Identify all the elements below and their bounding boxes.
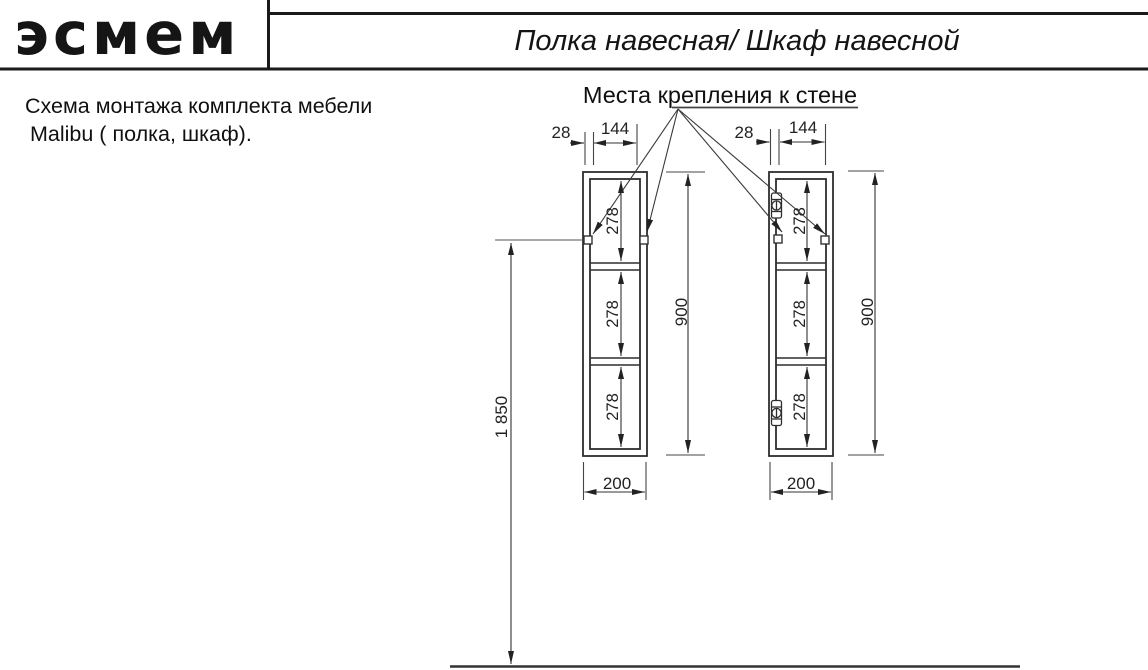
dim-label-278-right-3: 278 [791,393,809,421]
hinge-icon-bottom [772,401,782,426]
dim-label-1850: 1 850 [492,396,511,439]
wall-mount-callout-label: Места крепления к стене [545,82,895,109]
dim-label-28-left: 28 [552,123,571,142]
instruction-sheet-page: 28 144 28 144 278 278 278 278 278 278 [0,0,1148,670]
dim-label-278-left-1: 278 [604,207,622,235]
dim-label-278-right-2: 278 [791,300,809,328]
mounting-note: Схема монтажа комплекта мебели Malibu ( … [25,92,372,148]
dim-label-200-left: 200 [603,474,631,493]
mounting-note-line1: Схема монтажа комплекта мебели [25,92,372,120]
dim-label-28-right: 28 [735,123,754,142]
brand-logo: эсмем [14,0,264,66]
dim-label-278-left-2: 278 [604,300,622,328]
dim-label-900-right: 900 [858,298,877,326]
dim-label-144-right: 144 [789,118,817,137]
dim-label-278-left-3: 278 [604,393,622,421]
dim-label-278-right-1: 278 [791,207,809,235]
sheet-title: Полка навесная/ Шкаф навесной [268,15,1148,68]
dim-label-144-left: 144 [601,119,629,138]
mounting-note-line2: Malibu ( полка, шкаф). [25,120,372,148]
dim-label-900-left: 900 [672,298,691,326]
dim-mount-height [495,240,583,664]
hinge-icon-top [772,193,782,218]
dim-label-200-right: 200 [787,474,815,493]
